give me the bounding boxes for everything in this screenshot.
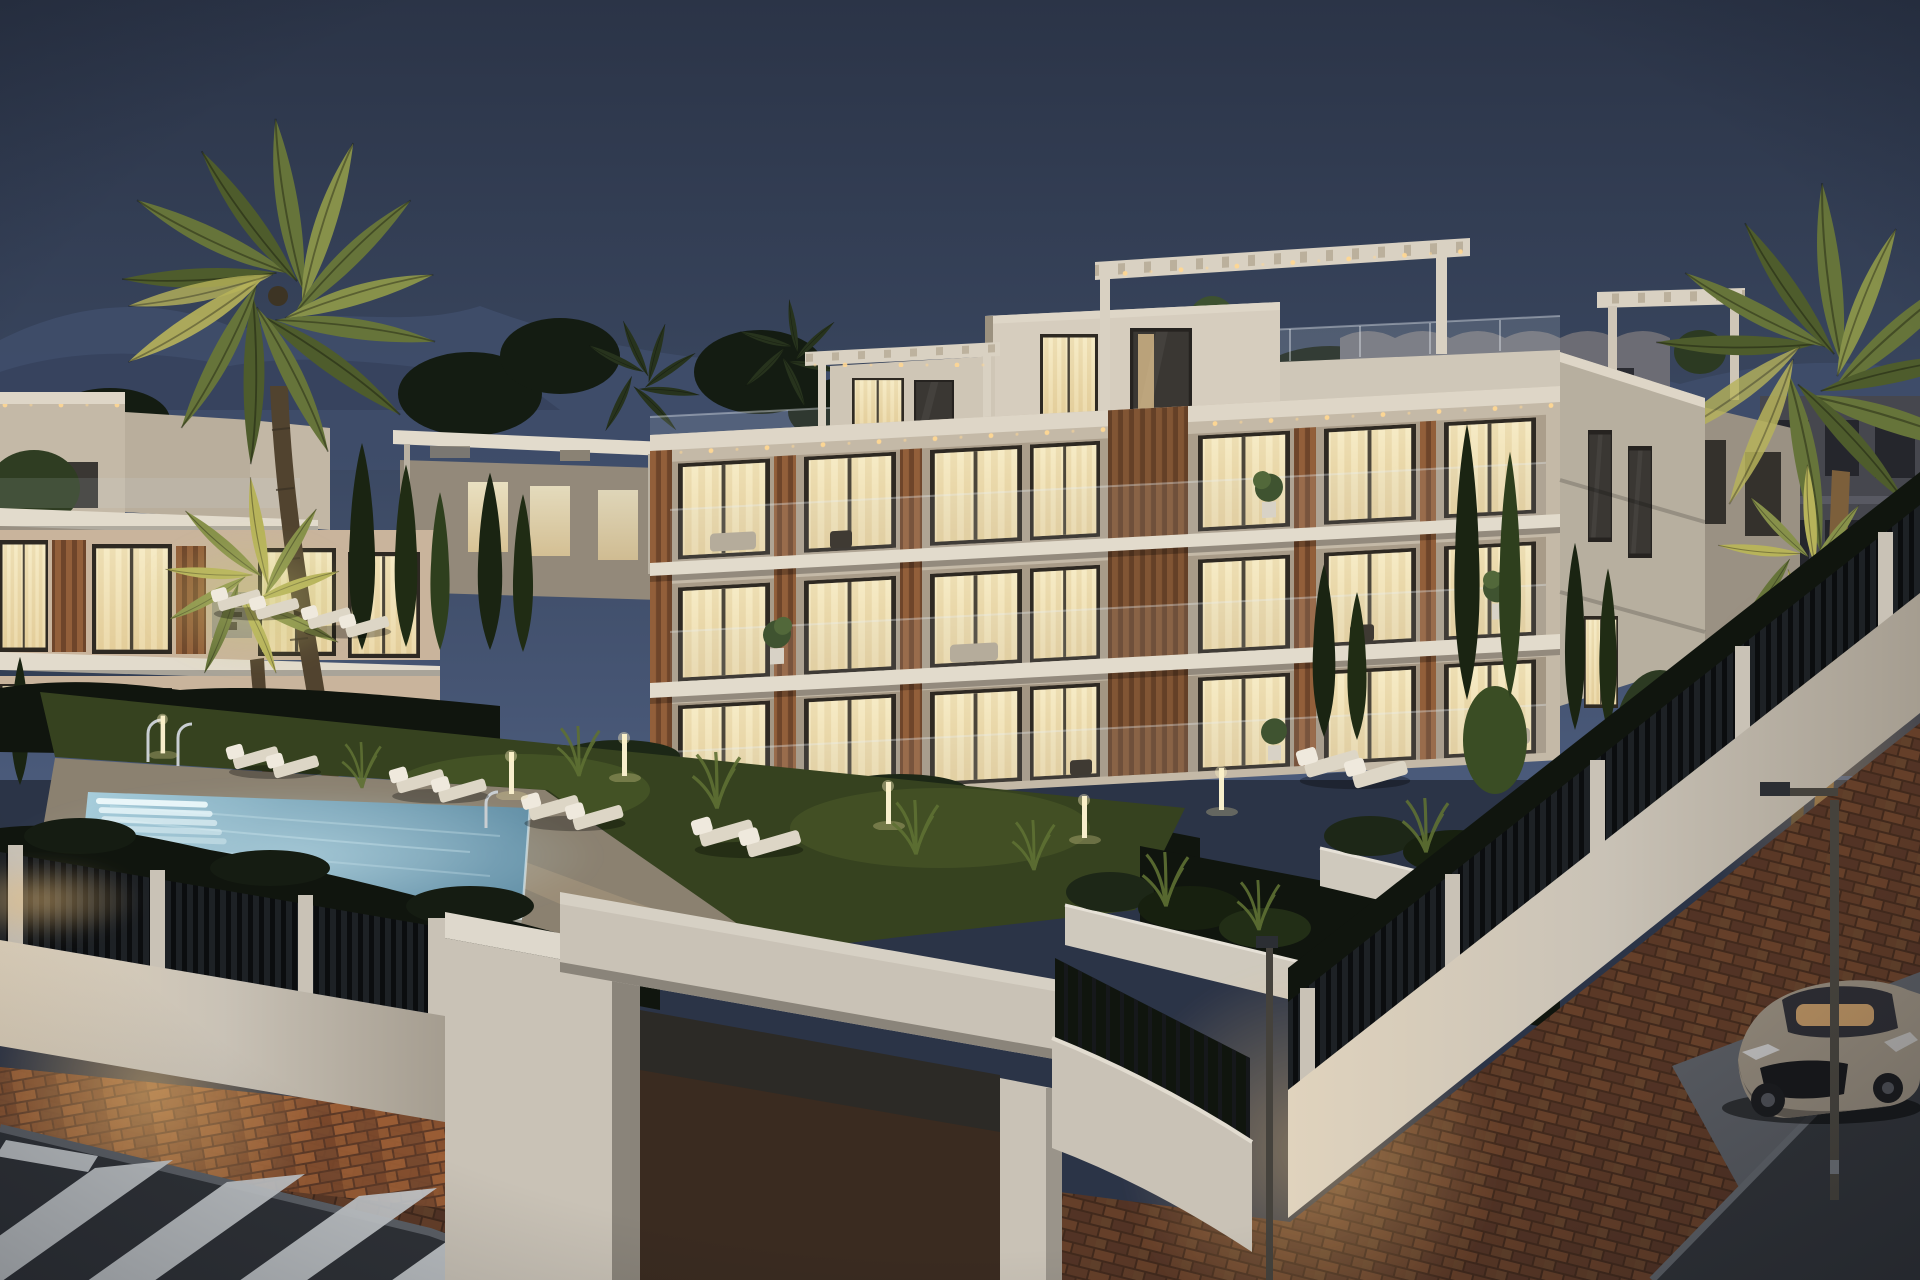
architectural-dusk-render (0, 0, 1920, 1280)
night-vignette (0, 0, 1920, 1280)
scene-canvas (0, 0, 1920, 1280)
